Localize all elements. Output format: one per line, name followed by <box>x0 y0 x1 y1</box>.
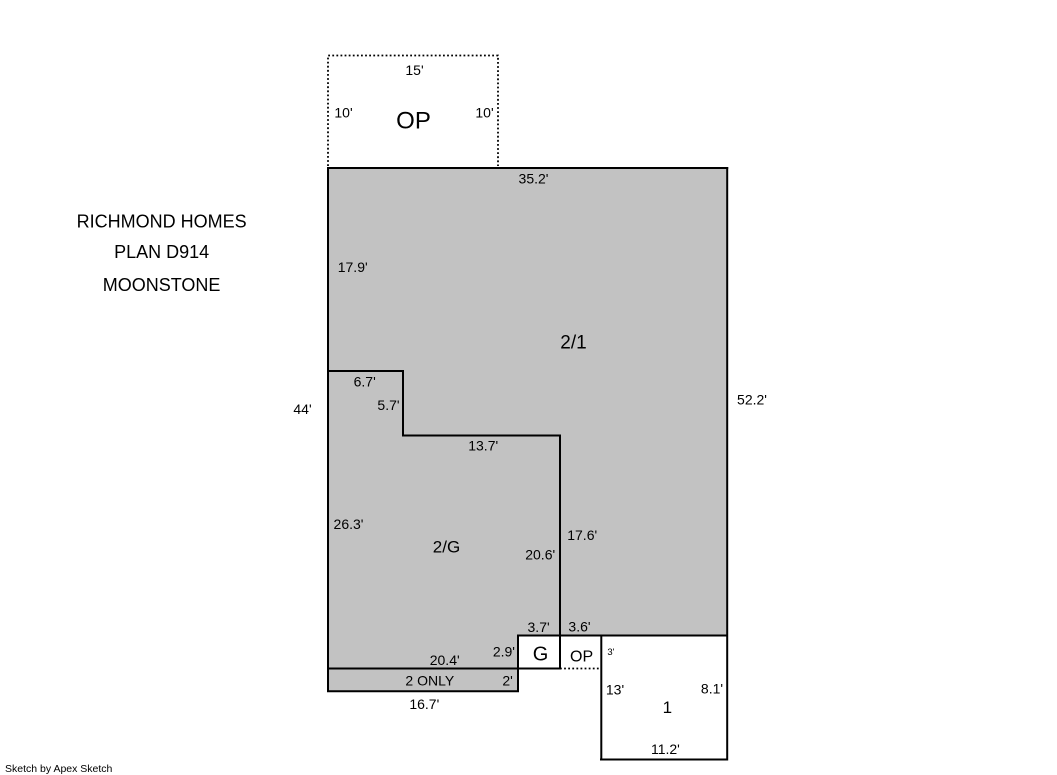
svg-text:13': 13' <box>606 681 624 697</box>
svg-text:20.4': 20.4' <box>430 652 460 668</box>
svg-text:2.9': 2.9' <box>493 644 515 660</box>
svg-text:2/1: 2/1 <box>560 332 586 353</box>
svg-text:6.7': 6.7' <box>354 373 376 389</box>
svg-text:17.6': 17.6' <box>567 527 597 543</box>
svg-text:PLAN D914: PLAN D914 <box>114 242 209 262</box>
svg-text:2 ONLY: 2 ONLY <box>405 673 454 689</box>
svg-text:10': 10' <box>475 105 493 121</box>
svg-text:Sketch by Apex Sketch: Sketch by Apex Sketch <box>5 763 113 775</box>
svg-text:G: G <box>533 644 549 666</box>
svg-text:15': 15' <box>405 62 423 78</box>
svg-text:20.6': 20.6' <box>525 547 555 563</box>
svg-text:52.2': 52.2' <box>737 392 767 408</box>
svg-text:8.1': 8.1' <box>701 680 723 696</box>
svg-text:2/G: 2/G <box>433 538 460 557</box>
svg-text:10': 10' <box>334 105 352 121</box>
svg-text:OP: OP <box>396 108 431 135</box>
svg-text:35.2': 35.2' <box>519 171 549 187</box>
svg-text:44': 44' <box>293 401 311 417</box>
svg-text:26.3': 26.3' <box>334 516 364 532</box>
svg-text:11.2': 11.2' <box>651 741 680 757</box>
svg-text:3.6': 3.6' <box>568 619 590 635</box>
svg-text:RICHMOND HOMES: RICHMOND HOMES <box>77 212 247 232</box>
svg-text:16.7': 16.7' <box>409 696 439 712</box>
svg-text:3': 3' <box>607 647 614 658</box>
svg-text:17.9': 17.9' <box>338 259 368 275</box>
svg-text:OP: OP <box>570 649 593 666</box>
svg-text:2': 2' <box>502 673 512 689</box>
svg-text:5.7': 5.7' <box>377 397 399 413</box>
svg-text:13.7': 13.7' <box>468 438 498 454</box>
svg-text:MOONSTONE: MOONSTONE <box>103 275 221 295</box>
svg-text:1: 1 <box>663 698 672 717</box>
svg-text:3.7': 3.7' <box>528 619 550 635</box>
